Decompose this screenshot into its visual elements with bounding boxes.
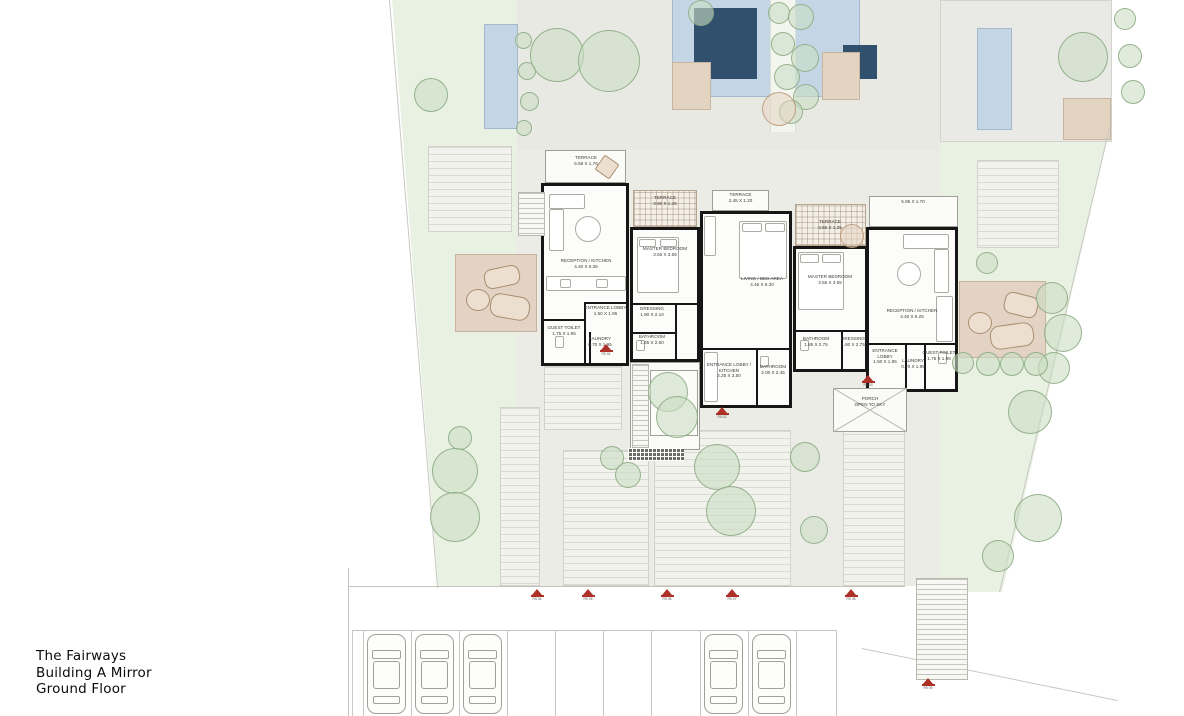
car-rear-window	[469, 696, 496, 704]
car-rear-window	[710, 696, 737, 704]
tree	[800, 516, 828, 544]
tree	[1014, 494, 1062, 542]
terrace-steps-left	[544, 366, 622, 430]
marker-label: FB 09	[916, 687, 940, 690]
floor-plan-page: TERRACE6.58 X 1.76 RECEPTION / KITCHEN4.…	[0, 0, 1184, 716]
project-name: The Fairways	[36, 648, 152, 665]
tree	[448, 426, 472, 450]
parked-car	[415, 634, 454, 714]
toilet	[636, 340, 645, 351]
deck-sofa	[482, 263, 521, 290]
pergola-left	[428, 146, 512, 232]
sofa	[549, 209, 564, 251]
parking-stall-line	[836, 630, 837, 716]
car-rear-window	[758, 696, 785, 704]
pillow	[800, 254, 819, 263]
marker-label: FB 01	[594, 353, 618, 356]
wardrobe	[704, 216, 716, 256]
tree	[520, 92, 539, 111]
parked-car	[367, 634, 406, 714]
seating-deck-left	[455, 254, 537, 332]
parked-car	[463, 634, 502, 714]
tree	[1118, 44, 1142, 68]
deck-chair	[968, 312, 992, 334]
sun-deck-top-2	[822, 52, 860, 100]
pillow	[765, 223, 785, 232]
stove	[560, 279, 571, 288]
parking-left-edge	[348, 568, 349, 716]
car-windshield	[709, 650, 738, 659]
garden-path	[843, 426, 905, 586]
floor-name: Ground Floor	[36, 681, 152, 698]
tree	[788, 4, 814, 30]
kitchen-counter	[704, 352, 718, 402]
tree	[952, 352, 974, 374]
pillow	[742, 223, 762, 232]
unit-marker: FB 06	[655, 589, 679, 601]
garden-path	[500, 407, 540, 586]
tree	[976, 252, 998, 274]
parking-stall-line	[796, 630, 797, 716]
site-boundary-bottom-right	[862, 648, 1118, 701]
parked-car	[752, 634, 791, 714]
unit-marker: FB 07	[720, 589, 744, 601]
sun-deck-top-right	[1063, 98, 1111, 140]
car-windshield	[757, 650, 786, 659]
tree	[768, 2, 790, 24]
marker-label: FB 02	[710, 416, 734, 419]
parking-stall-line	[411, 630, 412, 716]
dining-table	[897, 262, 921, 286]
tree	[976, 352, 1000, 376]
tree	[1008, 390, 1052, 434]
parking-stall-line	[555, 630, 556, 716]
sun-deck-top-1	[672, 62, 711, 110]
toilet	[938, 352, 947, 364]
tree	[694, 444, 740, 490]
drawing-title: The Fairways Building A Mirror Ground Fl…	[36, 648, 152, 698]
car-roof	[469, 661, 496, 689]
sofa	[934, 249, 949, 293]
central-stair	[632, 364, 649, 448]
car-rear-window	[421, 696, 448, 704]
tree	[516, 120, 532, 136]
planter-tree	[656, 396, 698, 438]
pool-top-right	[977, 28, 1012, 130]
porch-open-to-sky	[833, 388, 907, 432]
toilet	[800, 340, 809, 351]
parking-stall-line	[700, 630, 701, 716]
tree	[1121, 80, 1145, 104]
tree	[982, 540, 1014, 572]
deck-lounge	[488, 292, 532, 323]
parking-stall-line	[459, 630, 460, 716]
tree	[840, 224, 864, 248]
marker-label: FB 06	[655, 598, 679, 601]
tree	[615, 462, 641, 488]
floor-grate	[628, 448, 684, 461]
tree	[515, 32, 532, 49]
toilet	[760, 356, 769, 367]
tree	[1000, 352, 1024, 376]
sink	[596, 279, 608, 288]
unit-marker: FB 02	[710, 407, 734, 419]
unit-marker: FB 01	[594, 344, 618, 356]
car-rear-window	[373, 696, 400, 704]
unit-marker: FB 09	[916, 678, 940, 690]
sofa	[903, 234, 949, 249]
parking-edge	[352, 630, 836, 631]
car-roof	[758, 661, 785, 689]
pillow	[639, 239, 656, 247]
tree	[791, 44, 819, 72]
parking-stall-line	[748, 630, 749, 716]
parking-stall-line	[352, 630, 353, 716]
seating-deck-right	[959, 281, 1046, 358]
sofa	[549, 194, 585, 209]
parking-stall-line	[651, 630, 652, 716]
building-name: Building A Mirror	[36, 665, 152, 682]
unit-marker: FB 03	[856, 375, 880, 387]
tree	[430, 492, 480, 542]
car-roof	[421, 661, 448, 689]
tree	[1114, 8, 1136, 30]
car-roof	[710, 661, 737, 689]
tree	[706, 486, 756, 536]
tree	[762, 92, 796, 126]
deck-lounge	[989, 321, 1036, 351]
tree	[1036, 282, 1068, 314]
tree	[578, 30, 640, 92]
car-roof	[373, 661, 400, 689]
car-windshield	[372, 650, 401, 659]
tree	[1058, 32, 1108, 82]
pillow	[822, 254, 841, 263]
kitchen-counter	[936, 296, 953, 342]
terrace-c	[712, 190, 769, 211]
unit-marker: FB 05	[576, 589, 600, 601]
car-windshield	[420, 650, 449, 659]
unit-marker: FB 04	[525, 589, 549, 601]
tree	[414, 78, 448, 112]
terrace-e	[869, 196, 958, 227]
tree	[530, 28, 584, 82]
deck-chair	[466, 289, 490, 311]
deck-sofa	[1002, 290, 1040, 320]
marker-label: FB 04	[525, 598, 549, 601]
tree	[1024, 352, 1048, 376]
road-edge-top	[348, 586, 905, 587]
parking-stall-line	[363, 630, 364, 716]
marker-label: FB 08	[839, 598, 863, 601]
parking-stall-line	[507, 630, 508, 716]
pillow	[660, 239, 677, 247]
tree	[1044, 314, 1082, 352]
parking-stall-line	[603, 630, 604, 716]
unit-marker: FB 08	[839, 589, 863, 601]
marker-label: FB 05	[576, 598, 600, 601]
parked-car	[704, 634, 743, 714]
tree	[688, 0, 714, 26]
marker-label: FB 03	[856, 384, 880, 387]
tree	[432, 448, 478, 494]
terrace-b-pergola	[633, 190, 697, 227]
kitchen-counter	[546, 276, 626, 291]
toilet	[555, 336, 564, 348]
exterior-stair-left	[518, 192, 545, 236]
tree	[790, 442, 820, 472]
pool-top-left	[484, 24, 518, 129]
dining-table	[575, 216, 601, 242]
marker-label: FB 07	[720, 598, 744, 601]
pergola-right	[977, 160, 1059, 248]
car-windshield	[468, 650, 497, 659]
ramp-bottom-right	[916, 578, 968, 680]
